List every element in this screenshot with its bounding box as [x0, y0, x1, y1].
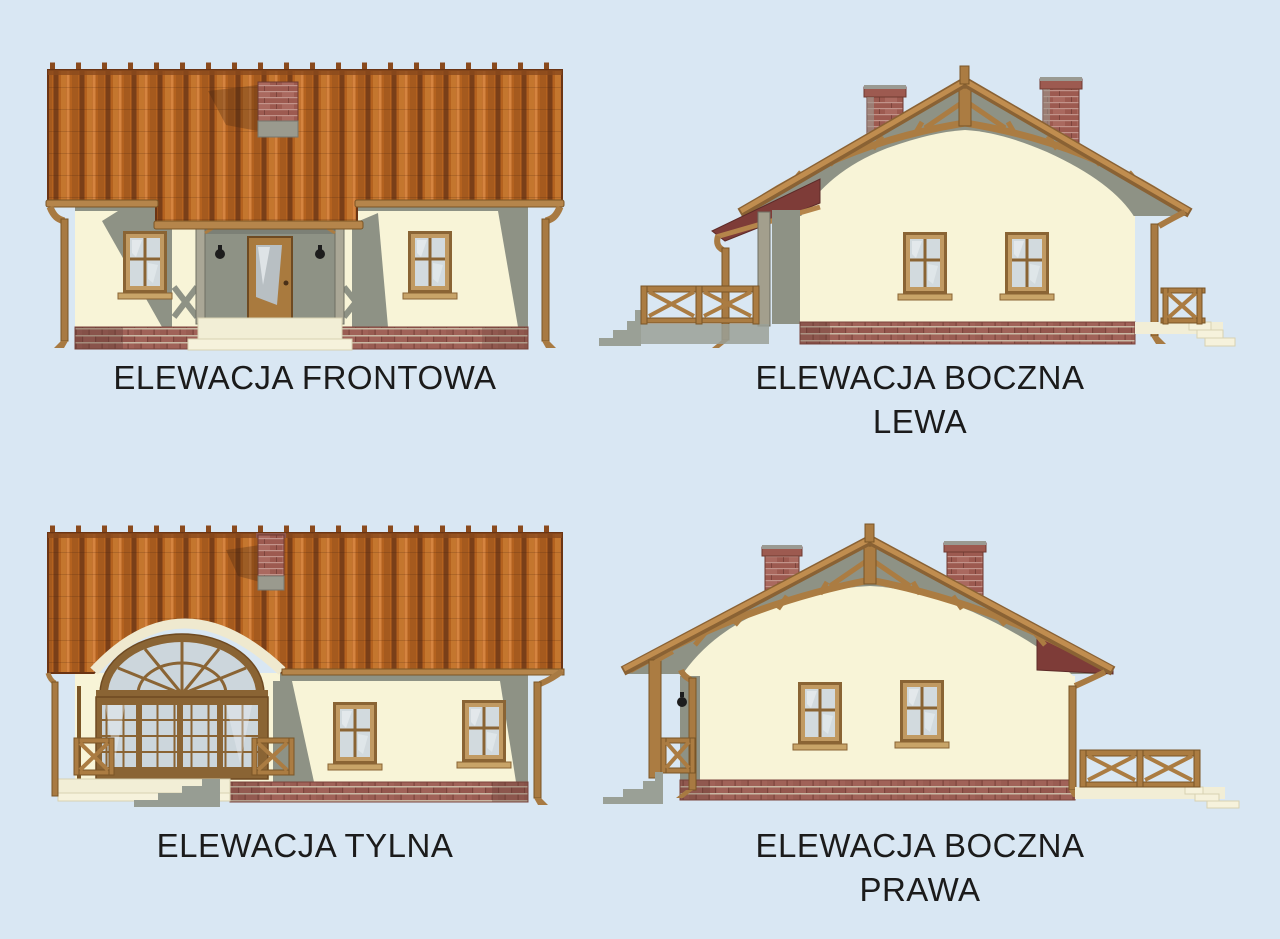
porch-lamp	[677, 697, 687, 707]
side-right-window-left	[793, 682, 847, 750]
rear-window-right	[457, 700, 511, 768]
right-side-elevation-drawing	[585, 520, 1245, 830]
caption-front-line1: ELEWACJA FRONTOWA	[30, 356, 580, 400]
front-door	[248, 237, 292, 324]
caption-rear: ELEWACJA TYLNA	[30, 824, 580, 868]
front-window-left	[118, 231, 172, 299]
caption-side-right: ELEWACJA BOCZNA PRAWA	[590, 824, 1250, 912]
caption-rear-line1: ELEWACJA TYLNA	[30, 824, 580, 868]
terrace-railing	[1080, 750, 1200, 787]
left-side-elevation-drawing	[585, 60, 1245, 360]
side-window-left	[898, 232, 952, 300]
rear-terrace	[58, 779, 230, 807]
brick-base-left-side	[800, 322, 1135, 344]
terrace-ground-shadow	[629, 324, 769, 344]
caption-front: ELEWACJA FRONTOWA	[30, 356, 580, 400]
terrace-right-assembly	[1069, 672, 1239, 808]
side-right-window-right	[895, 680, 949, 748]
rear-window-left	[328, 702, 382, 770]
caption-side-right-line1: ELEWACJA BOCZNA	[590, 824, 1250, 868]
porch-shadow-wall	[772, 210, 800, 324]
terrace-railing-right	[1161, 288, 1205, 324]
caption-side-left-line1: ELEWACJA BOCZNA	[590, 356, 1250, 400]
front-elevation-drawing	[30, 55, 580, 360]
caption-side-right-line2: PRAWA	[590, 868, 1250, 912]
porch-steps	[188, 318, 352, 350]
porch-post	[649, 660, 661, 778]
rear-elevation-drawing	[30, 520, 580, 830]
right-downspout	[1069, 686, 1076, 790]
porch-corner-post	[758, 212, 770, 326]
brick-base-right-side	[680, 780, 1075, 800]
terrace-steps-left	[599, 310, 641, 346]
rear-chimney	[256, 533, 286, 590]
rear-brick-base	[230, 782, 528, 802]
caption-side-left-line2: LEWA	[590, 400, 1250, 444]
front-chimney	[258, 82, 298, 137]
terrace-railing-left	[641, 286, 759, 324]
front-window-right	[403, 231, 457, 299]
elevation-sheet: ELEWACJA FRONTOWA ELEWACJA BOCZNA LEWA E…	[0, 0, 1280, 939]
porch-railing	[661, 738, 695, 773]
side-window-right	[1000, 232, 1054, 300]
caption-side-left: ELEWACJA BOCZNA LEWA	[590, 356, 1250, 444]
rear-gutter	[282, 669, 564, 675]
